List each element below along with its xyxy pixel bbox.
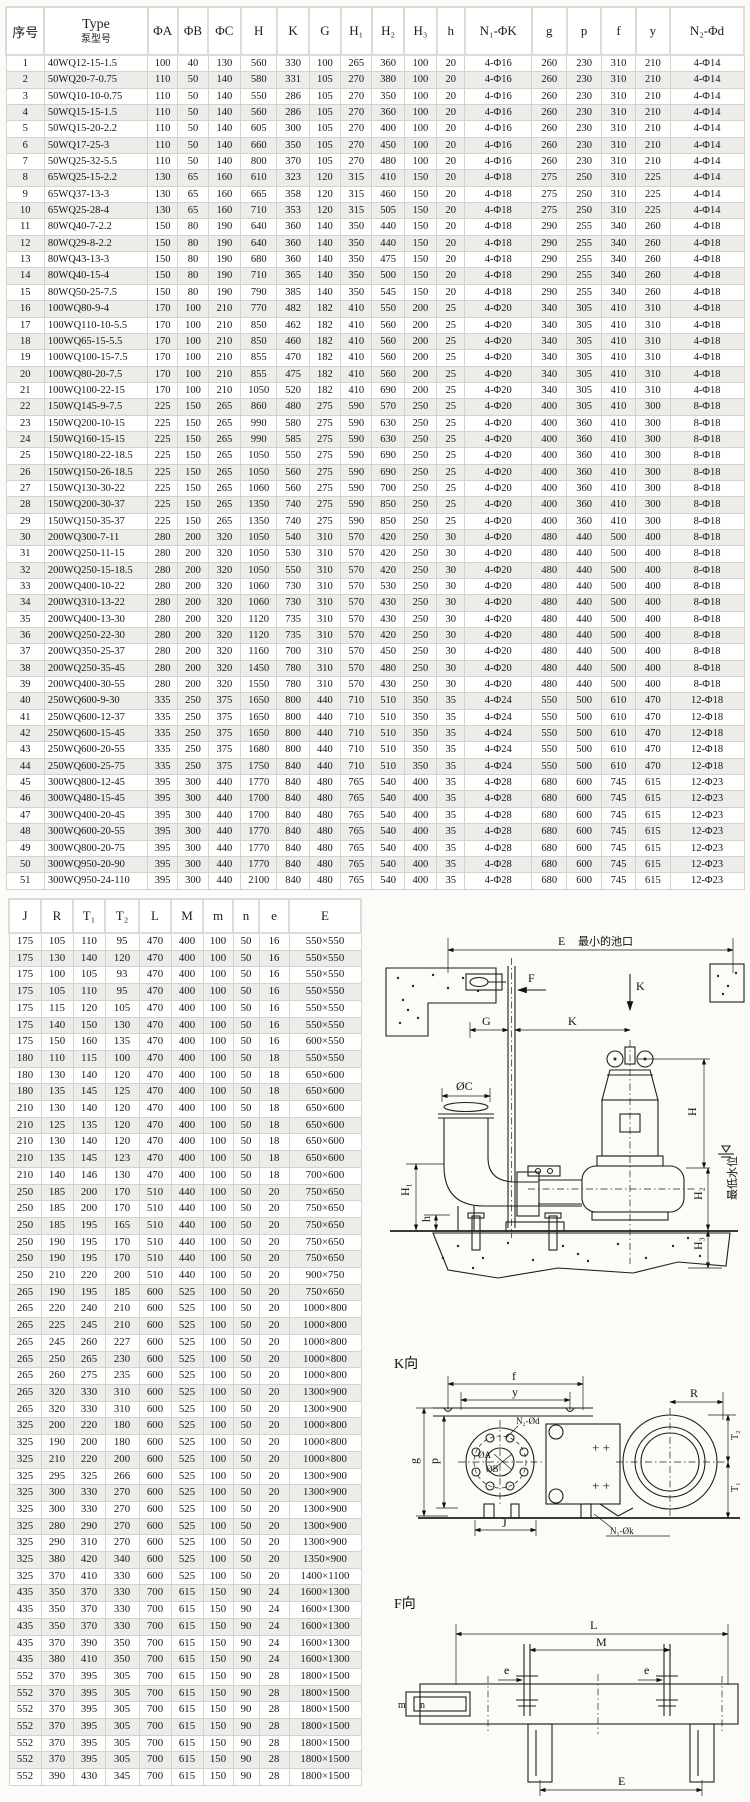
table-cell: 4-Φ14 [670, 154, 744, 170]
table-cell: 140 [73, 1134, 105, 1151]
table-cell: 420 [372, 546, 404, 562]
table-cell: 30 [437, 644, 465, 660]
table-cell: 480 [532, 611, 567, 627]
table-cell: 50 [178, 105, 208, 121]
table-cell: 25 [437, 415, 465, 431]
svg-text:e: e [644, 1663, 649, 1677]
table-cell: 610 [601, 709, 635, 725]
table-cell: 20 [259, 1301, 289, 1318]
table-cell: 480 [532, 546, 567, 562]
table-cell: 190 [208, 284, 240, 300]
mount-table-body: 175105110954704001005016550×550175130140… [9, 933, 361, 1785]
table-cell: 50 [233, 1384, 259, 1401]
table-cell: 400 [532, 431, 567, 447]
table-cell: 4-Φ16 [465, 55, 532, 72]
table-cell: 1050 [241, 448, 277, 464]
table-cell: 200WQ250-15-18.5 [44, 562, 147, 578]
table-cell: 250 [178, 726, 208, 742]
table-cell: 8-Φ18 [670, 480, 744, 496]
table-cell: 480 [372, 660, 404, 676]
table-cell: 50 [233, 1568, 259, 1585]
table-cell: 16 [259, 984, 289, 1001]
table-cell: 650×600 [289, 1084, 361, 1101]
table-cell: 22 [6, 399, 44, 415]
table-cell: 175 [9, 1017, 41, 1034]
table-cell: 170 [148, 366, 178, 382]
table-cell: 100 [178, 350, 208, 366]
table-cell: 210 [9, 1151, 41, 1168]
table-cell: 745 [601, 807, 635, 823]
table-cell: 4-Φ16 [465, 137, 532, 153]
table-cell: 105 [41, 984, 73, 1001]
view-arrow-F: F [518, 971, 546, 990]
table-cell: 4-Φ14 [670, 121, 744, 137]
table-cell: 1160 [241, 644, 277, 660]
table-cell: 65WQ25-28-4 [44, 203, 147, 219]
table-cell: 195 [73, 1251, 105, 1268]
table-cell: 265 [9, 1334, 41, 1351]
table-cell: 315 [341, 186, 372, 202]
table-cell: 700 [139, 1602, 171, 1619]
mounting-dimension-table: JRT₁T₂LMmneE 175105110954704001005016550… [8, 898, 362, 1786]
table-cell: 14 [6, 268, 44, 284]
table-row: 2501901951705104401005020750×650 [9, 1251, 361, 1268]
table-cell: 1300×900 [289, 1401, 361, 1418]
table-cell: 370 [41, 1568, 73, 1585]
table-cell: 550 [277, 562, 309, 578]
table-cell: 210 [636, 88, 670, 104]
table-cell: 310 [601, 105, 635, 121]
table-cell: 552 [9, 1752, 41, 1769]
table-cell: 80 [178, 219, 208, 235]
table-cell: 28 [259, 1769, 289, 1786]
table-cell: 8-Φ18 [670, 579, 744, 595]
table-cell: 400 [532, 399, 567, 415]
table-cell: 615 [171, 1719, 203, 1736]
table-cell: 270 [341, 88, 372, 104]
table-cell: 600 [139, 1368, 171, 1385]
table-cell: 4-Φ18 [670, 382, 744, 398]
table-cell: 8-Φ18 [670, 660, 744, 676]
table-cell: 400 [171, 933, 203, 950]
table-cell: 310 [636, 301, 670, 317]
table-cell: 500 [567, 758, 601, 774]
table-cell: 17 [6, 317, 44, 333]
table-cell: 400 [372, 121, 404, 137]
table-cell: 90 [233, 1752, 259, 1769]
table-cell: 250 [404, 529, 436, 545]
table-cell: 50 [233, 1334, 259, 1351]
pump-table-header: 序号 Type 泵型号 ΦAΦBΦCHKGH₁H₂H₃hN₁-ΦKgpfyN₂-… [6, 7, 744, 55]
table-cell: 150 [73, 1017, 105, 1034]
table-cell: 150 [203, 1635, 233, 1652]
table-cell: 200 [178, 644, 208, 660]
table-cell: 600 [139, 1318, 171, 1335]
table-cell: 12-Φ18 [670, 742, 744, 758]
table-cell: 130 [208, 55, 240, 72]
table-cell: 550 [241, 88, 277, 104]
table-cell: 780 [277, 660, 309, 676]
leg-right [690, 1724, 714, 1782]
table-cell: 100 [203, 1050, 233, 1067]
table-cell: 410 [341, 366, 372, 382]
table-cell: 470 [139, 1101, 171, 1118]
table-cell: 100 [203, 1101, 233, 1118]
table-cell: 4-Φ20 [465, 464, 532, 480]
table-cell: 50 [233, 1134, 259, 1151]
table-cell: 350 [105, 1652, 139, 1669]
table-cell: 1650 [241, 709, 277, 725]
table-row: 55239043034570061515090281800×1500 [9, 1769, 361, 1786]
table-cell: 700 [139, 1769, 171, 1786]
table-cell: 500 [601, 579, 635, 595]
table-cell: 30 [437, 529, 465, 545]
table-cell: 700 [277, 644, 309, 660]
table-cell: 275 [309, 448, 340, 464]
table-cell: 18 [259, 1101, 289, 1118]
table-cell: 4-Φ20 [465, 382, 532, 398]
table-cell: 275 [309, 415, 340, 431]
table-cell: 530 [277, 546, 309, 562]
table-cell: 320 [208, 595, 240, 611]
table-cell: 18 [259, 1134, 289, 1151]
table-cell: 290 [532, 219, 567, 235]
table-cell: 615 [171, 1702, 203, 1719]
table-cell: 525 [171, 1418, 203, 1435]
table-cell: 105 [73, 967, 105, 984]
table-cell: 600 [139, 1568, 171, 1585]
table-cell: 440 [567, 579, 601, 595]
table-cell: 150WQ160-15-15 [44, 431, 147, 447]
table-cell: 140 [41, 1017, 73, 1034]
table-row: 1751301401204704001005016550×550 [9, 950, 361, 967]
table-cell: 765 [341, 873, 372, 889]
table-cell: 400 [532, 464, 567, 480]
table-cell: 350 [41, 1618, 73, 1635]
table-cell: 540 [372, 775, 404, 791]
table-row: 650WQ17-25-31105014066035010527045010020… [6, 137, 744, 153]
table-cell: 210 [208, 366, 240, 382]
table-cell: 710 [341, 758, 372, 774]
table-cell: 90 [233, 1702, 259, 1719]
table-cell: 690 [372, 464, 404, 480]
table-cell: 400 [171, 967, 203, 984]
table-cell: 265 [208, 480, 240, 496]
table-row: 26524526022760052510050201000×800 [9, 1334, 361, 1351]
table-cell: 400 [404, 824, 436, 840]
table-cell: 470 [139, 984, 171, 1001]
table-cell: 100 [203, 1000, 233, 1017]
table-row: 32520022018060052510050201000×800 [9, 1418, 361, 1435]
table-cell: 525 [171, 1301, 203, 1318]
table-row: 32537041033060052510050201400×1100 [9, 1568, 361, 1585]
table-cell: 600 [139, 1468, 171, 1485]
table-cell: 305 [567, 333, 601, 349]
table-cell: 740 [277, 497, 309, 513]
table-cell: 395 [148, 840, 178, 856]
table-cell: 250 [178, 693, 208, 709]
table-cell: 250 [404, 513, 436, 529]
table-cell: 4-Φ18 [670, 301, 744, 317]
table-cell: 130 [148, 170, 178, 186]
table-cell: 270 [341, 105, 372, 121]
table-cell: 540 [372, 824, 404, 840]
table-cell: 435 [9, 1652, 41, 1669]
dim-e-left: e [498, 1663, 522, 1680]
table-cell: 500 [601, 562, 635, 578]
table-cell: 260 [636, 284, 670, 300]
table-cell: 610 [601, 742, 635, 758]
table-cell: 270 [105, 1535, 139, 1552]
table-cell: 385 [277, 284, 309, 300]
table-row: 22150WQ145-9-7.5225150265860480275590570… [6, 399, 744, 415]
table-row: 43537039035070061515090241600×1300 [9, 1635, 361, 1652]
table-cell: 35 [437, 873, 465, 889]
table-cell: 50 [233, 967, 259, 984]
table-cell: 200 [105, 1451, 139, 1468]
table-cell: 745 [601, 873, 635, 889]
table-cell: 400 [171, 1101, 203, 1118]
table-cell: 4-Φ28 [465, 791, 532, 807]
table-cell: 150 [41, 1034, 73, 1051]
table-cell: 150 [178, 448, 208, 464]
table-cell: 4-Φ18 [465, 284, 532, 300]
table-cell: 470 [139, 1167, 171, 1184]
table-row: 45300WQ800-12-45395300440177084048076554… [6, 775, 744, 791]
table-cell: 250 [178, 758, 208, 774]
table-cell: 8-Φ18 [670, 546, 744, 562]
table-cell: 4-Φ28 [465, 856, 532, 872]
table-cell: 470 [636, 742, 670, 758]
table-row: 55237039530570061515090281800×1500 [9, 1752, 361, 1769]
table-cell: 210 [208, 333, 240, 349]
table-cell: 600 [139, 1334, 171, 1351]
table-cell: 170 [105, 1251, 139, 1268]
table-cell: 170 [105, 1234, 139, 1251]
table-cell: 185 [41, 1184, 73, 1201]
table-cell: 1000×800 [289, 1451, 361, 1468]
table-cell: 500 [567, 742, 601, 758]
table-cell: 105 [309, 154, 340, 170]
table-cell: 1550 [241, 677, 277, 693]
table-cell: 275 [309, 399, 340, 415]
table-row: 32529532526660052510050201300×900 [9, 1468, 361, 1485]
table-cell: 310 [601, 137, 635, 153]
table-cell: 16 [259, 1000, 289, 1017]
table-cell: 4-Φ20 [465, 480, 532, 496]
table-cell: 765 [341, 791, 372, 807]
table-cell: 130 [41, 1101, 73, 1118]
table-cell: 200 [178, 546, 208, 562]
table-cell: 150 [203, 1702, 233, 1719]
table-cell: 100 [41, 967, 73, 984]
table-cell: 430 [372, 595, 404, 611]
column-header: ΦB [178, 7, 208, 55]
table-cell: 200 [178, 562, 208, 578]
table-cell: 500 [372, 268, 404, 284]
table-cell: 4-Φ20 [465, 562, 532, 578]
table-cell: 370 [41, 1635, 73, 1652]
table-cell: 600 [567, 856, 601, 872]
table-cell: 4-Φ20 [465, 644, 532, 660]
table-cell: 690 [372, 382, 404, 398]
table-cell: 400 [636, 677, 670, 693]
table-cell: 525 [171, 1451, 203, 1468]
table-cell: 550×550 [289, 967, 361, 984]
table-cell: 4-Φ28 [465, 775, 532, 791]
table-cell: 1120 [241, 611, 277, 627]
svg-text:E: E [558, 934, 565, 948]
table-cell: 4-Φ24 [465, 742, 532, 758]
discharge-flange: ØA ØB [458, 1420, 542, 1504]
table-cell: 20 [259, 1401, 289, 1418]
table-cell: 680 [532, 824, 567, 840]
table-cell: 440 [171, 1251, 203, 1268]
table-row: 28150WQ200-30-37225150265135074027559085… [6, 497, 744, 513]
table-cell: 350 [372, 88, 404, 104]
table-cell: 175 [9, 1034, 41, 1051]
table-cell: 100 [203, 1384, 233, 1401]
table-cell: 700 [139, 1719, 171, 1736]
table-row: 1801351451254704001005018650×600 [9, 1084, 361, 1101]
table-cell: 462 [277, 317, 309, 333]
table-cell: 360 [567, 448, 601, 464]
table-cell: 210 [636, 72, 670, 88]
table-cell: 50 [233, 933, 259, 950]
table-cell: 180 [105, 1418, 139, 1435]
svg-text:ØC: ØC [456, 1079, 473, 1093]
table-cell: 300 [178, 775, 208, 791]
table-cell: 330 [105, 1602, 139, 1619]
table-cell: 855 [241, 350, 277, 366]
table-cell: 280 [148, 579, 178, 595]
table-row: 2101301401204704001005018650×600 [9, 1134, 361, 1151]
table-row: 1380WQ43-13-3150801906803601403504751502… [6, 252, 744, 268]
table-cell: 140 [73, 1101, 105, 1118]
table-cell: 305 [105, 1668, 139, 1685]
table-cell: 200WQ400-13-30 [44, 611, 147, 627]
table-cell: 25 [6, 448, 44, 464]
table-row: 27150WQ130-30-22225150265106056027559070… [6, 480, 744, 496]
table-row: 16100WQ80-9-4170100210770482182410550200… [6, 301, 744, 317]
table-cell: 690 [372, 448, 404, 464]
table-cell: 340 [601, 252, 635, 268]
table-cell: 150 [203, 1685, 233, 1702]
table-cell: 400 [636, 611, 670, 627]
table-cell: 750×650 [289, 1234, 361, 1251]
svg-text:最小的池口: 最小的池口 [578, 934, 633, 948]
table-cell: 20 [437, 88, 465, 104]
table-cell: 100 [404, 137, 436, 153]
table-cell: 320 [41, 1384, 73, 1401]
table-cell: 38 [6, 660, 44, 676]
table-cell: 25 [437, 497, 465, 513]
table-cell: 50 [233, 1050, 259, 1067]
table-cell: 20 [259, 1334, 289, 1351]
table-cell: 150WQ145-9-7.5 [44, 399, 147, 415]
table-cell: 700 [139, 1635, 171, 1652]
table-cell: 440 [567, 595, 601, 611]
table-cell: 590 [341, 415, 372, 431]
table-cell: 100WQ80-20-7.5 [44, 366, 147, 382]
table-cell: 100 [203, 950, 233, 967]
dim-G: G [470, 1014, 508, 1038]
table-cell: 310 [309, 546, 340, 562]
table-cell: 4-Φ20 [465, 366, 532, 382]
table-cell: 275 [309, 480, 340, 496]
table-cell: 100 [203, 1501, 233, 1518]
svg-text:g: g [407, 1458, 421, 1464]
column-header: N₂-Φd [670, 7, 744, 55]
table-cell: 80WQ40-15-4 [44, 268, 147, 284]
table-cell: 4-Φ16 [465, 105, 532, 121]
table-row: 21100WQ100-22-15170100210105052018241069… [6, 382, 744, 398]
table-cell: 20 [259, 1201, 289, 1218]
table-cell: 850 [372, 497, 404, 513]
table-cell: 615 [171, 1735, 203, 1752]
svg-text:F: F [528, 971, 535, 985]
table-row: 33200WQ400-10-22280200320106073031057053… [6, 579, 744, 595]
table-cell: 200 [178, 611, 208, 627]
table-cell: 50 [233, 1184, 259, 1201]
table-cell: 440 [567, 529, 601, 545]
table-cell: 100 [203, 1351, 233, 1368]
table-cell: 100WQ110-10-5.5 [44, 317, 147, 333]
table-cell: 570 [341, 595, 372, 611]
table-cell: 50 [6, 856, 44, 872]
table-cell: 600 [567, 873, 601, 889]
table-cell: 560 [277, 480, 309, 496]
table-cell: 745 [601, 775, 635, 791]
table-cell: 140 [208, 154, 240, 170]
mounting-plate [433, 1408, 593, 1416]
table-cell: 50 [233, 1017, 259, 1034]
table-cell: 41 [6, 709, 44, 725]
table-cell: 50 [233, 1301, 259, 1318]
table-cell: 200WQ250-22-30 [44, 628, 147, 644]
table-cell: 510 [139, 1234, 171, 1251]
table-cell: 100 [105, 1050, 139, 1067]
table-cell: 225 [636, 203, 670, 219]
table-cell: 4-Φ18 [670, 317, 744, 333]
table-cell: 20 [259, 1268, 289, 1285]
table-cell: 300WQ480-15-45 [44, 791, 147, 807]
table-cell: 275 [309, 497, 340, 513]
table-cell: 750×650 [289, 1217, 361, 1234]
table-cell: 300 [636, 431, 670, 447]
table-cell: 325 [9, 1435, 41, 1452]
table-cell: 225 [636, 170, 670, 186]
table-cell: 260 [532, 105, 567, 121]
table-cell: 20 [259, 1217, 289, 1234]
table-cell: 65 [178, 186, 208, 202]
table-cell: 323 [277, 170, 309, 186]
table-cell: 200 [178, 579, 208, 595]
table-cell: 130 [105, 1167, 139, 1184]
table-cell: 525 [171, 1384, 203, 1401]
table-cell: 120 [105, 1134, 139, 1151]
table-cell: 50 [233, 1318, 259, 1335]
table-cell: 100 [178, 366, 208, 382]
table-cell: 300 [636, 415, 670, 431]
table-cell: 440 [171, 1268, 203, 1285]
table-cell: 500 [601, 546, 635, 562]
table-cell: 250 [404, 497, 436, 513]
table-cell: 32 [6, 562, 44, 578]
table-cell: 375 [208, 709, 240, 725]
table-cell: 710 [341, 726, 372, 742]
table-cell: 40 [6, 693, 44, 709]
